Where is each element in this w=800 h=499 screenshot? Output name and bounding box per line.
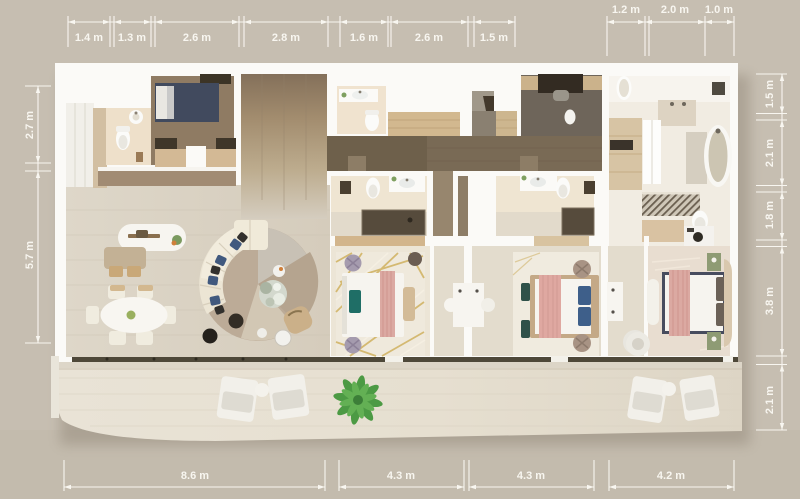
svg-text:3.8 m: 3.8 m	[764, 287, 776, 315]
svg-text:1.4 m: 1.4 m	[75, 32, 103, 44]
svg-text:4.2 m: 4.2 m	[657, 470, 685, 482]
svg-text:5.7 m: 5.7 m	[24, 241, 36, 269]
svg-text:2.7 m: 2.7 m	[24, 111, 36, 139]
svg-text:1.2 m: 1.2 m	[612, 4, 640, 16]
svg-text:4.3 m: 4.3 m	[387, 470, 415, 482]
svg-text:1.0 m: 1.0 m	[705, 4, 733, 16]
svg-text:2.6 m: 2.6 m	[415, 32, 443, 44]
svg-text:1.8 m: 1.8 m	[764, 201, 776, 229]
svg-text:2.8 m: 2.8 m	[272, 32, 300, 44]
svg-text:4.3 m: 4.3 m	[517, 470, 545, 482]
svg-text:2.0 m: 2.0 m	[661, 4, 689, 16]
svg-text:1.6 m: 1.6 m	[350, 32, 378, 44]
svg-text:2.1 m: 2.1 m	[764, 139, 776, 167]
svg-text:1.5 m: 1.5 m	[764, 80, 776, 108]
svg-text:1.5 m: 1.5 m	[480, 32, 508, 44]
svg-text:2.1 m: 2.1 m	[764, 386, 776, 414]
svg-text:8.6 m: 8.6 m	[181, 470, 209, 482]
svg-text:1.3 m: 1.3 m	[118, 32, 146, 44]
svg-text:2.6 m: 2.6 m	[183, 32, 211, 44]
